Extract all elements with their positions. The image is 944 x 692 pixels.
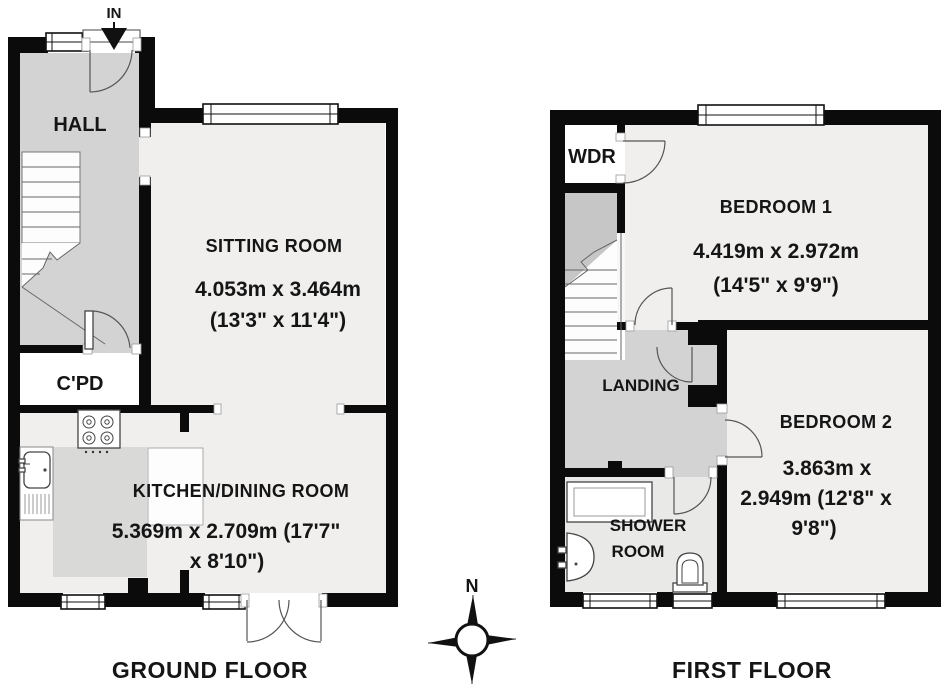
bedroom2-label: BEDROOM 2 <box>780 412 893 432</box>
toilet <box>673 553 707 592</box>
kitchen-window-left <box>61 595 105 609</box>
opening-jamb <box>214 404 221 414</box>
bedroom2-dim-line2: 2.949m (12'8" x <box>740 487 892 510</box>
bedroom2-dim-line3: 9'8") <box>791 517 836 540</box>
kitchen-counter <box>53 447 147 577</box>
wc-window <box>673 594 712 608</box>
kitchen-dim-line2: x 8'10") <box>190 550 265 573</box>
north-label: N <box>466 576 479 596</box>
kitchen-sink <box>19 447 53 520</box>
sitting-room-window <box>203 104 338 124</box>
opening-jamb <box>140 128 150 137</box>
bedroom1-dim-metric: 4.419m x 2.972m <box>693 240 859 263</box>
shower-door-opening <box>672 468 712 477</box>
kitchen-window-right <box>203 595 245 609</box>
bedroom1-label: BEDROOM 1 <box>720 197 833 217</box>
first-floor-plan: WDR BEDROOM 1 4.419m x 2.972m (14'5" x 9… <box>550 105 941 683</box>
cupboard-label: C'PD <box>57 373 104 395</box>
kitchen-label: KITCHEN/DINING ROOM <box>133 481 350 501</box>
sitting-room-label: SITTING ROOM <box>206 236 343 256</box>
shower-room-label-line2: ROOM <box>612 542 665 561</box>
opening-jamb <box>337 404 344 414</box>
bedroom1-dim-imperial: (14'5" x 9'9") <box>713 274 839 297</box>
hall-sitting-opening <box>139 137 151 177</box>
floorplan-svg: IN HALL SITTING ROOM 4.053m x 3.464m (13… <box>0 0 944 692</box>
kitchen-dim-line1: 5.369m x 2.709m (17'7" <box>112 520 341 543</box>
hob <box>78 410 120 453</box>
west-point <box>428 637 459 647</box>
opening-jamb <box>140 176 150 185</box>
room-sitting <box>151 123 385 405</box>
shower-window <box>583 594 657 608</box>
sink-drainer <box>25 494 49 514</box>
wdr-label: WDR <box>568 146 616 168</box>
compass-hub <box>456 624 488 656</box>
compass-rose: N <box>428 576 516 684</box>
bedroom2-window <box>777 594 885 608</box>
ground-floor-title: GROUND FLOOR <box>112 657 308 683</box>
floorplan-page: IN HALL SITTING ROOM 4.053m x 3.464m (13… <box>0 0 944 692</box>
hall-door-opening <box>87 345 139 353</box>
bedroom1-door-opening <box>633 322 672 330</box>
ground-floor-plan: IN HALL SITTING ROOM 4.053m x 3.464m (13… <box>8 5 398 683</box>
hall-label: HALL <box>53 114 106 136</box>
kitchen-sitting-opening <box>220 405 343 413</box>
bedroom1-window <box>698 105 824 125</box>
first-floor-title: FIRST FLOOR <box>672 657 832 683</box>
sitting-room-dim-metric: 4.053m x 3.464m <box>195 278 361 301</box>
bedroom2-door-opening <box>717 412 727 457</box>
east-point <box>486 635 516 645</box>
french-doors <box>241 594 327 642</box>
bedroom2-dim-line1: 3.863m x <box>783 457 872 480</box>
sitting-room-dim-imperial: (13'3" x 11'4") <box>210 309 346 332</box>
landing-label: LANDING <box>602 376 679 395</box>
entrance-label: IN <box>107 5 122 22</box>
shower-room-label-line1: SHOWER <box>610 516 687 535</box>
